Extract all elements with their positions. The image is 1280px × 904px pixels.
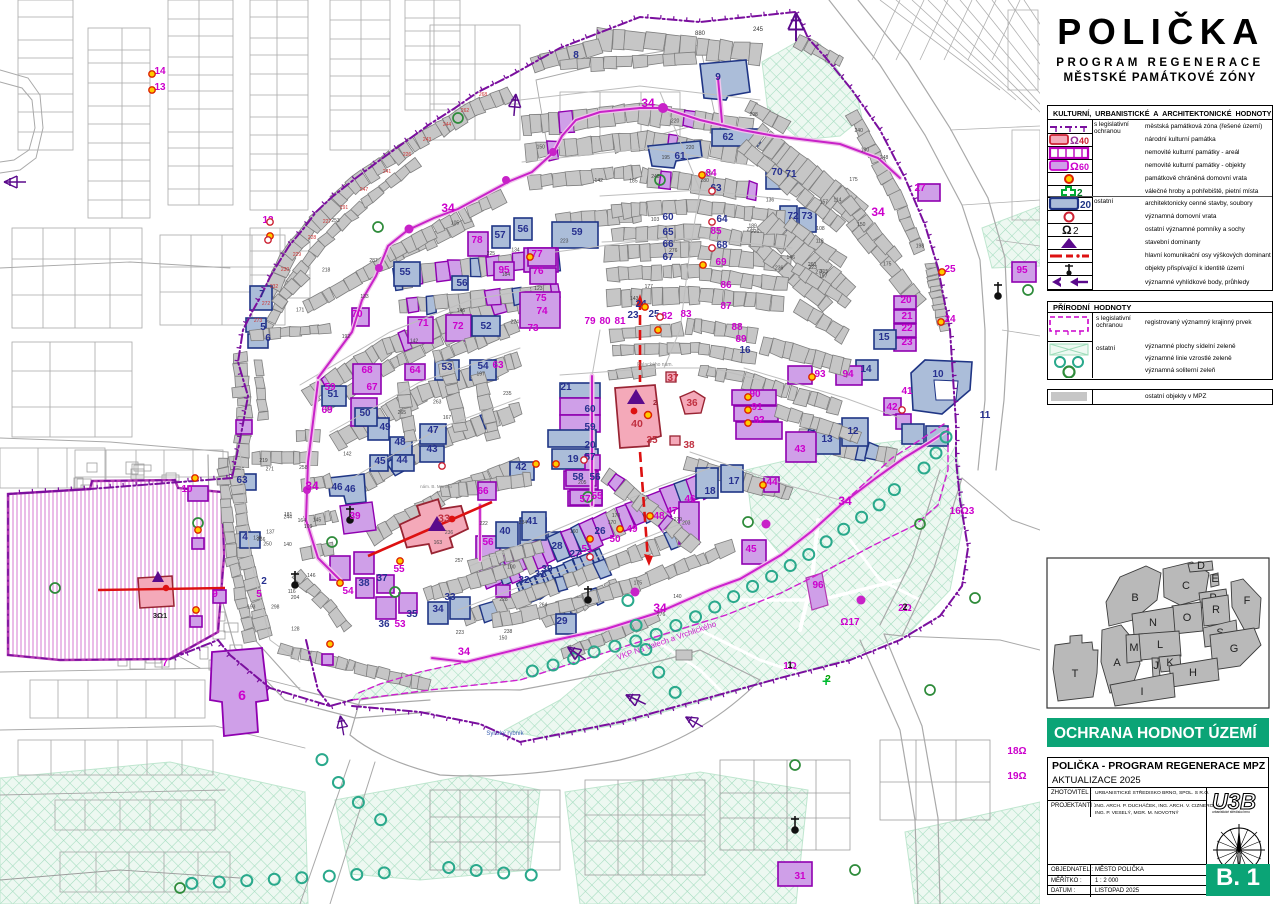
svg-text:H: H	[1189, 667, 1197, 679]
svg-text:C: C	[1182, 580, 1190, 592]
svg-text:G: G	[1230, 643, 1239, 655]
svg-text:A: A	[1113, 657, 1121, 669]
svg-text:N: N	[1149, 617, 1157, 629]
svg-text:E: E	[1211, 573, 1218, 585]
svg-text:F: F	[1244, 595, 1251, 607]
svg-text:O: O	[1183, 612, 1192, 624]
svg-text:I: I	[1140, 686, 1143, 698]
svg-text:D: D	[1197, 560, 1205, 572]
svg-text:J: J	[1153, 660, 1159, 672]
svg-text:L: L	[1157, 639, 1163, 651]
svg-text:M: M	[1129, 642, 1138, 654]
svg-text:T: T	[1072, 668, 1079, 680]
svg-text:R: R	[1212, 604, 1220, 616]
svg-text:B: B	[1131, 592, 1138, 604]
